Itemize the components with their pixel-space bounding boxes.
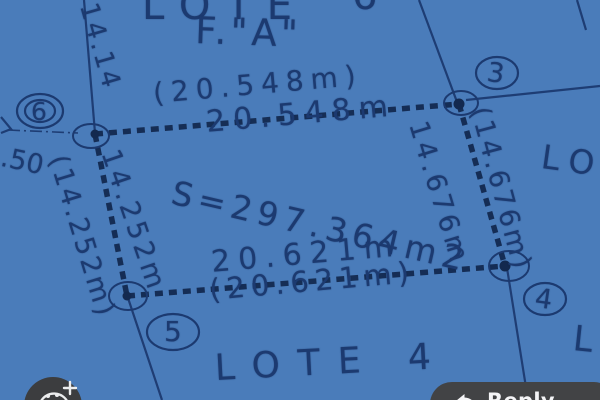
bottom-lot-label: LOTE 4 [214, 339, 450, 387]
bottom-right-lot-label-partial: L [571, 322, 594, 359]
reply-button[interactable]: Reply [430, 382, 600, 400]
vertex-number-3: 3 [485, 59, 506, 88]
plan-text-layer: LOTE 6 F."A" 14.14 .50 (20.548m) 20.548m… [0, 0, 600, 400]
reply-label: Reply [487, 389, 555, 400]
offset-label: .50 [0, 144, 46, 179]
vertex-number-4: 4 [533, 285, 554, 314]
right-lot-label-partial: LO [539, 140, 600, 181]
measure-side-top-left: 14.14 [75, 0, 125, 93]
reply-arrow-icon [454, 389, 478, 400]
add-reaction-button[interactable] [24, 377, 82, 400]
blueprint-photo-screenshot: LOTE 6 F."A" 14.14 .50 (20.548m) 20.548m… [0, 0, 600, 400]
top-lot-number-partial: 6 [352, 0, 377, 16]
add-reaction-icon [24, 377, 82, 400]
vertex-number-6: 6 [31, 99, 47, 124]
measure-right-outer: (14.676m) [466, 104, 536, 274]
top-lot-fraction-label: F."A" [195, 12, 303, 53]
vertex-number-5: 5 [164, 318, 182, 346]
